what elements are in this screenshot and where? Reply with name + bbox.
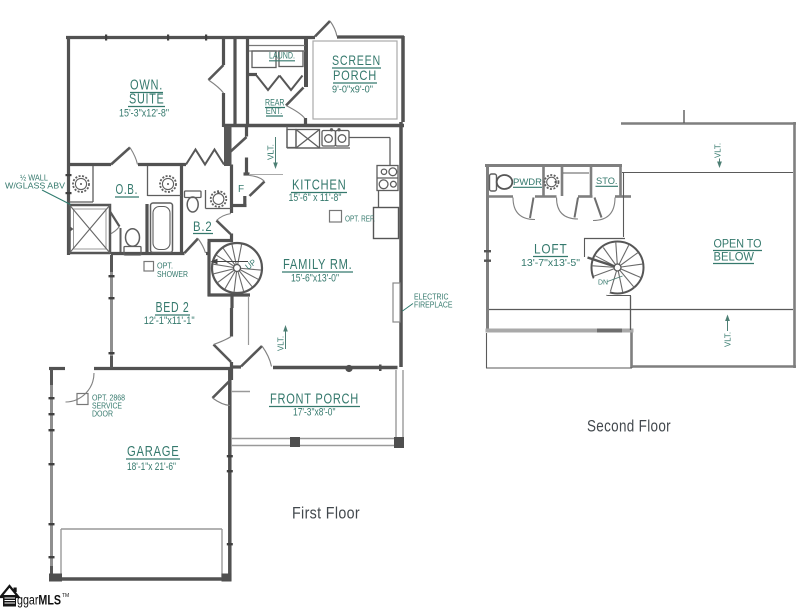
svg-text:15'-3"x12'-8": 15'-3"x12'-8" [119,108,169,120]
svg-text:18'-1"x 21'-6": 18'-1"x 21'-6" [127,461,176,473]
svg-text:VLT.: VLT. [713,143,723,158]
svg-text:O.B.: O.B. [116,181,139,198]
svg-text:FAMILY RM.: FAMILY RM. [283,256,353,273]
svg-text:OPT. REF.: OPT. REF. [345,214,375,224]
svg-text:GARAGE: GARAGE [127,443,180,460]
svg-text:ggarMLS: ggarMLS [17,593,61,608]
svg-text:F: F [238,184,244,195]
svg-text:OPEN TO: OPEN TO [714,239,762,251]
svg-text:W/GLASS ABV: W/GLASS ABV [5,182,66,191]
svg-text:15'-6"x13'-0": 15'-6"x13'-0" [291,273,339,285]
svg-text:13'-7"x13'-5": 13'-7"x13'-5" [521,257,580,269]
svg-text:TM: TM [62,593,69,599]
svg-text:First Floor: First Floor [292,505,360,523]
svg-text:17'-3"x8'-0": 17'-3"x8'-0" [293,407,336,419]
svg-text:LAUND.: LAUND. [269,51,295,62]
svg-text:B.2: B.2 [193,219,213,234]
svg-text:BELOW: BELOW [714,252,755,264]
svg-text:Second Floor: Second Floor [587,418,671,436]
svg-text:DN: DN [598,278,608,287]
svg-text:SCREEN: SCREEN [332,52,381,68]
svg-text:15'-6" x 11'-8": 15'-6" x 11'-8" [289,192,342,204]
svg-text:12'-1"x11'-1": 12'-1"x11'-1" [144,315,195,327]
svg-text:9'-0"x9'-0": 9'-0"x9'-0" [332,84,373,96]
svg-text:FRONT PORCH: FRONT PORCH [270,391,359,408]
svg-text:LOFT: LOFT [534,241,568,257]
svg-text:VLT.: VLT. [266,144,276,160]
svg-text:DOOR: DOOR [92,409,113,419]
svg-text:STO.: STO. [596,176,618,186]
svg-text:BED 2: BED 2 [156,299,190,316]
svg-text:VLT.: VLT. [723,332,733,347]
svg-text:KITCHEN: KITCHEN [292,177,347,194]
svg-text:PORCH: PORCH [333,67,377,83]
svg-text:SHOWER: SHOWER [157,269,188,279]
svg-text:PWDR: PWDR [513,177,543,187]
svg-text:VLT.: VLT. [276,336,286,351]
svg-text:FIREPLACE: FIREPLACE [414,300,453,310]
